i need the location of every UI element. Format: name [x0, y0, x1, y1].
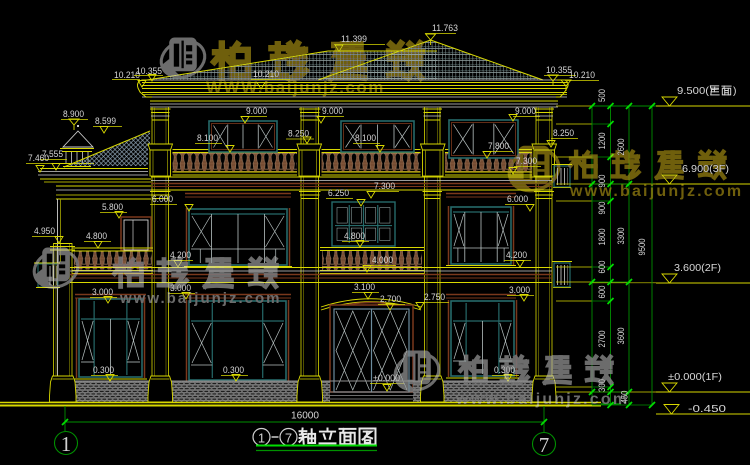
svg-text:3.600(2F): 3.600(2F) — [674, 262, 721, 274]
svg-text:2.700: 2.700 — [380, 294, 401, 304]
svg-text:1800: 1800 — [597, 229, 607, 246]
svg-text:8.599: 8.599 — [95, 116, 116, 126]
svg-text:9.500(: 9.500( — [677, 85, 710, 97]
svg-text:4.200: 4.200 — [506, 250, 527, 260]
svg-text:www.baijunjz.com: www.baijunjz.com — [569, 183, 743, 200]
svg-text:500: 500 — [597, 89, 607, 102]
svg-text:6.000: 6.000 — [507, 194, 528, 204]
svg-text:0.300: 0.300 — [223, 365, 244, 375]
svg-text:3300: 3300 — [616, 228, 626, 245]
svg-text:2.750: 2.750 — [424, 292, 445, 302]
svg-text:4.800: 4.800 — [344, 231, 365, 241]
svg-text:3.100: 3.100 — [354, 282, 375, 292]
svg-text:5.800: 5.800 — [102, 202, 123, 212]
svg-text:900: 900 — [597, 202, 607, 215]
svg-text:1: 1 — [258, 431, 265, 446]
svg-text:WWW.baijunjz.com: WWW.baijunjz.com — [206, 78, 385, 97]
svg-text:9500: 9500 — [637, 239, 647, 256]
svg-text:www.baijunjz.com: www.baijunjz.com — [455, 391, 629, 408]
svg-text:3.000: 3.000 — [92, 287, 113, 297]
svg-text:16000: 16000 — [291, 411, 319, 422]
svg-text:7: 7 — [285, 431, 292, 446]
svg-text:8.100: 8.100 — [197, 133, 218, 143]
svg-text:): ) — [733, 85, 737, 97]
svg-text:1200: 1200 — [597, 133, 607, 150]
svg-text:0.300: 0.300 — [93, 365, 114, 375]
svg-text:9.000: 9.000 — [515, 106, 536, 116]
svg-text:7.300: 7.300 — [374, 181, 395, 191]
svg-text:6.000: 6.000 — [152, 194, 173, 204]
svg-text:600: 600 — [597, 286, 607, 299]
svg-text:8.100: 8.100 — [355, 133, 376, 143]
svg-text:8.900: 8.900 — [63, 109, 84, 119]
svg-text:±0.000(1F): ±0.000(1F) — [668, 371, 722, 383]
svg-text:2700: 2700 — [597, 331, 607, 348]
svg-text:7.800: 7.800 — [488, 141, 509, 151]
svg-text:7: 7 — [539, 433, 550, 457]
svg-text:10.210: 10.210 — [569, 70, 595, 80]
svg-text:-0.450: -0.450 — [688, 403, 726, 415]
svg-text:4.000: 4.000 — [372, 255, 393, 265]
svg-text:7.460: 7.460 — [28, 153, 49, 163]
svg-text:4.800: 4.800 — [86, 231, 107, 241]
svg-text:www.baijunjz.com: www.baijunjz.com — [119, 290, 281, 307]
svg-text:3600: 3600 — [616, 328, 626, 345]
svg-text:4.950: 4.950 — [34, 226, 55, 236]
svg-text:8.250: 8.250 — [553, 128, 574, 138]
svg-text:9.000: 9.000 — [322, 106, 343, 116]
svg-text:6.250: 6.250 — [328, 188, 349, 198]
svg-text:3.000: 3.000 — [509, 285, 530, 295]
svg-text:9.000: 9.000 — [246, 106, 267, 116]
svg-text:11.763: 11.763 — [432, 23, 458, 33]
svg-text:1: 1 — [61, 432, 72, 456]
svg-text:600: 600 — [597, 261, 607, 274]
